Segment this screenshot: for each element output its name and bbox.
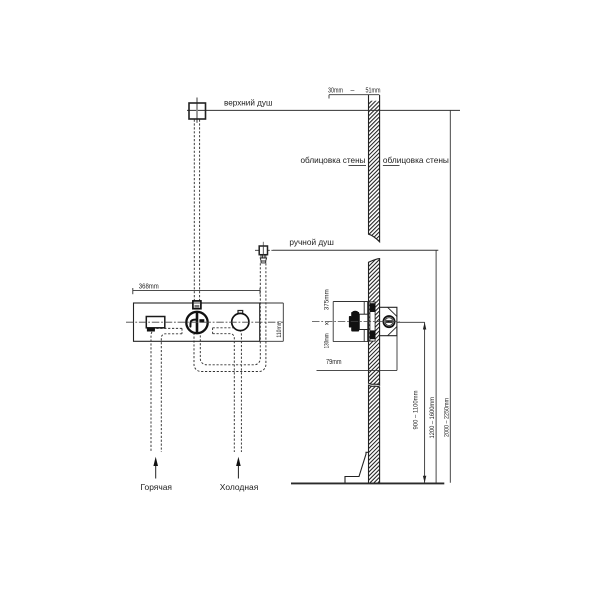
svg-text:368mm: 368mm	[139, 283, 159, 290]
svg-text:Горячая: Горячая	[141, 482, 173, 492]
svg-text:110mm: 110mm	[276, 321, 283, 338]
svg-text:900 – 1100mm: 900 – 1100mm	[412, 391, 419, 430]
svg-text:79mm: 79mm	[326, 359, 342, 366]
svg-text:2000 – 2250mm: 2000 – 2250mm	[443, 398, 450, 437]
svg-text:30mm: 30mm	[328, 87, 343, 94]
svg-text:Холодная: Холодная	[220, 482, 259, 492]
svg-text:верхний душ: верхний душ	[224, 97, 273, 107]
svg-text:130mm: 130mm	[324, 333, 331, 348]
svg-text:облицовка стены: облицовка стены	[301, 155, 366, 165]
svg-text:51mm: 51mm	[366, 87, 381, 94]
svg-text:375mm: 375mm	[324, 289, 331, 310]
svg-text:–: –	[351, 87, 355, 94]
svg-text:1200 – 1600mm: 1200 – 1600mm	[429, 397, 436, 439]
svg-text:ручной душ: ручной душ	[289, 237, 334, 247]
svg-text:облицовка стены: облицовка стены	[383, 155, 449, 165]
